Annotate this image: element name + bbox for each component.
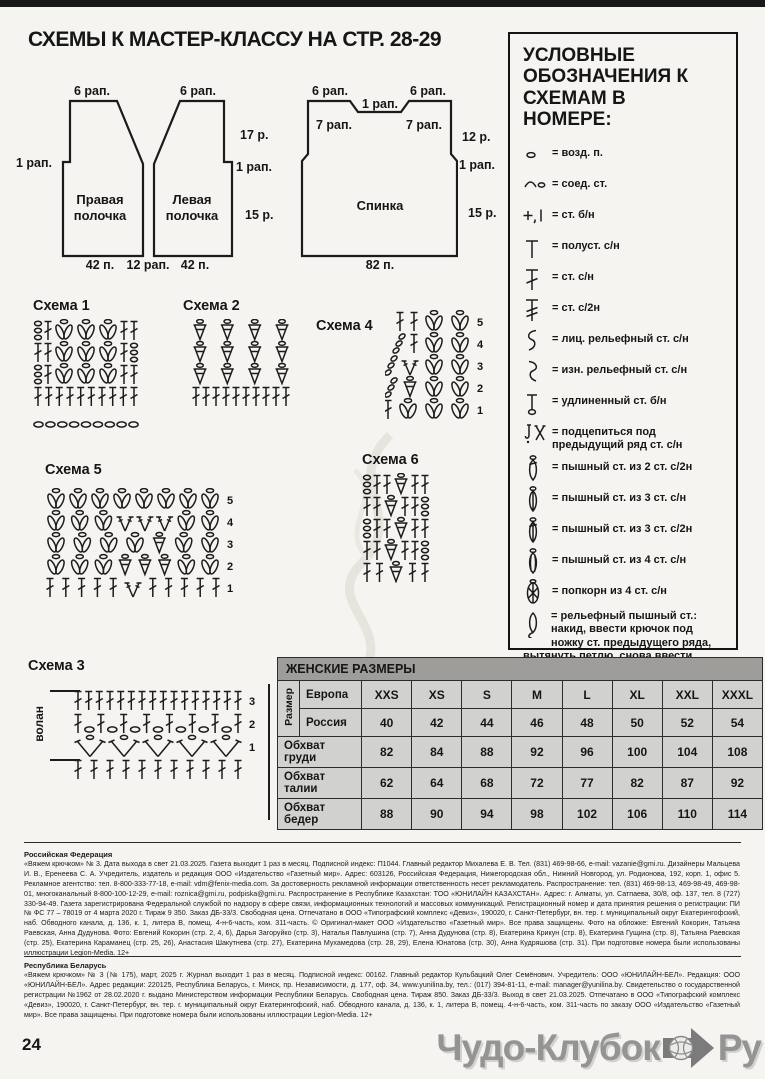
table-cell: 110	[662, 799, 712, 830]
table-cell: 104	[662, 737, 712, 768]
scheme-6-chart	[362, 473, 430, 588]
popcorn-icon	[523, 579, 547, 607]
legend-title: УСЛОВНЫЕ ОБОЗНАЧЕНИЯ К СХЕМАМ В НОМЕРЕ:	[523, 45, 718, 131]
scheme-4-title: Схема 4	[316, 318, 373, 334]
legend-item: = ст. б/н	[523, 203, 723, 231]
stitch-chart-svg: 321	[73, 689, 261, 781]
watermark-text-2: Ру	[718, 1027, 761, 1069]
scheme-5-chart: 54321	[45, 488, 239, 603]
legend-item: = подцепиться под предыдущий ряд ст. с/н	[523, 420, 723, 452]
stitch-chart-svg	[191, 319, 291, 407]
table-header-cell: 46	[512, 709, 562, 737]
legend-item-label: = пышный ст. из 3 ст. с/2н	[552, 517, 692, 536]
left-front-outline	[152, 98, 238, 258]
table-header-cell: XS	[412, 681, 462, 709]
stitch-chart-svg	[33, 319, 139, 429]
legend-item: = полуст. с/н	[523, 234, 723, 262]
table-cell: 82	[362, 737, 412, 768]
lf-step-label: 1 рап.	[236, 160, 272, 174]
table-header-cell: 48	[562, 709, 612, 737]
scheme-6-title: Схема 6	[362, 452, 430, 468]
puff2-icon	[523, 455, 547, 483]
reliefpuff-icon	[523, 610, 547, 638]
table-header-cell: 52	[662, 709, 712, 737]
magazine-page: СХЕМЫ К МАСТЕР-КЛАССУ НА СТР. 28-29 6 ра…	[0, 0, 765, 1079]
back-name: Спинка	[330, 198, 430, 214]
right-front-outline	[55, 98, 145, 258]
under-icon	[523, 420, 547, 448]
svg-text:4: 4	[477, 339, 484, 351]
scheme-2-chart	[191, 319, 291, 412]
legend-item-label: = удлиненный ст. б/н	[552, 389, 666, 408]
site-watermark: Чудо-Клубок Ру	[437, 1025, 761, 1071]
back-top-center-label: 1 рап.	[352, 97, 408, 111]
legend-item: = ст. с/н	[523, 265, 723, 293]
legend-item-label: = ст. с/2н	[552, 296, 600, 315]
table-cell: 87	[662, 768, 712, 799]
table-header: Европа	[300, 681, 362, 709]
legend-item-label: = соед. ст.	[552, 172, 607, 191]
table-cell: 94	[462, 799, 512, 830]
legend-item: = пышный ст. из 3 ст. с/н	[523, 486, 723, 514]
table-header-cell: XXS	[362, 681, 412, 709]
svg-text:2: 2	[227, 561, 233, 573]
table-cell: 82	[612, 768, 662, 799]
back-bottom-label: 82 п.	[340, 258, 420, 272]
svg-text:1: 1	[249, 742, 255, 754]
scheme-2: Схема 2	[183, 298, 291, 412]
legend-item: = ст. с/2н	[523, 296, 723, 324]
stitch-chart-svg: 54321	[385, 310, 489, 420]
size-table: ЖЕНСКИЕ РАЗМЕРЫРазмерЕвропаXXSXSSMLXLXXL…	[277, 657, 763, 830]
table-cell: 106	[612, 799, 662, 830]
svg-text:1: 1	[227, 583, 233, 595]
legend-item: = изн. рельефный ст. с/н	[523, 358, 723, 386]
size-label: Размер	[283, 688, 295, 726]
puff3-icon	[523, 486, 547, 514]
footer-belarus-title: Республика Беларусь	[24, 961, 740, 971]
table-cell: 88	[462, 737, 512, 768]
back-lower-rows-label: 15 р.	[468, 206, 497, 220]
table-cell: 77	[562, 768, 612, 799]
scheme-5: Схема 5 54321	[45, 462, 239, 603]
svg-text:3: 3	[227, 539, 233, 551]
dc-icon	[523, 265, 547, 293]
puff3t-icon	[523, 517, 547, 545]
scheme-1-title: Схема 1	[33, 298, 139, 314]
table-cell: 92	[712, 768, 762, 799]
back-top-right-label: 6 рап.	[400, 84, 456, 98]
table-cell: 88	[362, 799, 412, 830]
table-header-cell: 50	[612, 709, 662, 737]
table-cell: 96	[562, 737, 612, 768]
table-cell: 62	[362, 768, 412, 799]
table-row-label: Обхват талии	[278, 768, 362, 799]
table-row-label: Обхват бедер	[278, 799, 362, 830]
chain-icon	[523, 141, 547, 169]
table-header-cell: XL	[612, 681, 662, 709]
stitch-chart-svg	[362, 473, 430, 583]
legend-item-label: = возд. п.	[552, 141, 603, 160]
table-row: Обхват груди8284889296100104108	[278, 737, 763, 768]
back-step-label: 1 рап.	[459, 158, 495, 172]
footer-belarus: Республика Беларусь «Вяжем крючком» № 3 …	[24, 961, 740, 1020]
esc-icon	[523, 389, 547, 417]
table-cell: 90	[412, 799, 462, 830]
page-top-edge	[0, 0, 765, 7]
table-cell: 102	[562, 799, 612, 830]
legend-items: = возд. п.= соед. ст.= ст. б/н= полуст. …	[523, 141, 723, 747]
scheme-4: Схема 4 54321	[316, 310, 489, 425]
fpdc-icon	[523, 327, 547, 355]
legend-item-label: = лиц. рельефный ст. с/н	[552, 327, 689, 346]
legend-box: УСЛОВНЫЕ ОБОЗНАЧЕНИЯ К СХЕМАМ В НОМЕРЕ: …	[508, 32, 738, 650]
legend-item: = пышный ст. из 2 ст. с/2н	[523, 455, 723, 483]
table-cell: 72	[512, 768, 562, 799]
table-row-label: Обхват груди	[278, 737, 362, 768]
scheme-1: Схема 1	[33, 298, 139, 434]
table-header-cell: S	[462, 681, 512, 709]
scheme-4-chart: 54321	[385, 310, 489, 425]
footer-divider-2	[24, 956, 741, 957]
table-header-cell: M	[512, 681, 562, 709]
legend-item-label: = ст. б/н	[552, 203, 595, 222]
scheme-3-side-label: волан	[32, 706, 46, 742]
stitch-chart-svg: 54321	[45, 488, 239, 598]
svg-text:3: 3	[477, 361, 483, 373]
footer-belarus-text: «Вяжем крючком» № 3 (№ 175), март, 2025 …	[24, 971, 740, 1018]
table-header: Россия	[300, 709, 362, 737]
page-number: 24	[22, 1035, 41, 1055]
lf-top-label: 6 рап.	[168, 84, 228, 98]
table-cell: 114	[712, 799, 762, 830]
table-header-cell: XXL	[662, 681, 712, 709]
legend-item: = удлиненный ст. б/н	[523, 389, 723, 417]
table-cell: 92	[512, 737, 562, 768]
svg-text:3: 3	[249, 696, 255, 708]
scheme-3-chart: 321	[73, 689, 261, 786]
footer-russia-title: Российская Федерация	[24, 850, 740, 860]
rf-name: Правая полочка	[60, 192, 140, 225]
legend-item: = возд. п.	[523, 141, 723, 169]
footer-russia: Российская Федерация «Вяжем крючком» № 3…	[24, 850, 740, 958]
lf-bottom-label: 42 п.	[160, 258, 230, 272]
table-cell: 64	[412, 768, 462, 799]
legend-item-label: = полуст. с/н	[552, 234, 620, 253]
table-cell: 98	[512, 799, 562, 830]
slst-icon	[523, 172, 547, 200]
table-cell: 108	[712, 737, 762, 768]
back-rows-label: 12 р.	[462, 130, 491, 144]
table-cell: 68	[462, 768, 512, 799]
svg-text:5: 5	[227, 495, 233, 507]
legend-item-label: = изн. рельефный ст. с/н	[552, 358, 687, 377]
legend-item: = пышный ст. из 3 ст. с/2н	[523, 517, 723, 545]
table-header-cell: 54	[712, 709, 762, 737]
footer-russia-text: «Вяжем крючком» № 3. Дата выхода в свет …	[24, 860, 740, 956]
hdc-icon	[523, 234, 547, 262]
yarn-ball-arrow-icon	[662, 1025, 716, 1071]
legend-item-label: = пышный ст. из 4 ст. с/н	[552, 548, 686, 567]
svg-text:4: 4	[227, 517, 234, 529]
legend-item-label: = пышный ст. из 3 ст. с/н	[552, 486, 686, 505]
table-row-header: Размер	[278, 681, 300, 737]
legend-item-label: = ст. с/н	[552, 265, 594, 284]
table-row: Обхват талии6264687277828792	[278, 768, 763, 799]
table-cell: 100	[612, 737, 662, 768]
table-cell: 84	[412, 737, 462, 768]
scheme-3-title: Схема 3	[28, 658, 268, 674]
page-title: СХЕМЫ К МАСТЕР-КЛАССУ НА СТР. 28-29	[28, 28, 441, 52]
svg-text:2: 2	[477, 383, 483, 395]
scheme-3: Схема 3 волан 321	[28, 658, 268, 783]
legend-item: = лиц. рельефный ст. с/н	[523, 327, 723, 355]
column-divider	[268, 684, 270, 820]
legend-item-label: = подцепиться под предыдущий ряд ст. с/н	[552, 420, 723, 452]
legend-item: = соед. ст.	[523, 172, 723, 200]
back-shoulder-right-label: 7 рап.	[402, 118, 446, 132]
lf-rows-label: 17 р.	[240, 128, 269, 142]
back-top-left-label: 6 рап.	[302, 84, 358, 98]
svg-text:5: 5	[477, 317, 483, 329]
puff4-icon	[523, 548, 547, 576]
legend-item-label: = пышный ст. из 2 ст. с/2н	[552, 455, 692, 474]
lf-name: Левая полочка	[152, 192, 232, 225]
scheme-5-title: Схема 5	[45, 462, 239, 478]
scheme-1-chart	[33, 319, 139, 434]
table-header-cell: 44	[462, 709, 512, 737]
size-table-wrap: ЖЕНСКИЕ РАЗМЕРЫРазмерЕвропаXXSXSSMLXLXXL…	[277, 657, 763, 830]
legend-item: = попкорн из 4 ст. с/н	[523, 579, 723, 607]
sc-icon	[523, 203, 547, 231]
legend-item-label: = попкорн из 4 ст. с/н	[552, 579, 667, 598]
scheme-6: Схема 6	[362, 452, 430, 588]
table-header-cell: XXXL	[712, 681, 762, 709]
lf-lower-rows-label: 15 р.	[245, 208, 274, 222]
table-row: Обхват бедер88909498102106110114	[278, 799, 763, 830]
legend-item: = пышный ст. из 4 ст. с/н	[523, 548, 723, 576]
table-header-cell: 42	[412, 709, 462, 737]
svg-text:2: 2	[249, 719, 255, 731]
back-shoulder-left-label: 7 рап.	[312, 118, 356, 132]
rf-left-label: 1 рап.	[16, 156, 52, 170]
scheme-2-title: Схема 2	[183, 298, 291, 314]
table-header-cell: 40	[362, 709, 412, 737]
dc2-icon	[523, 296, 547, 324]
svg-text:1: 1	[477, 405, 483, 417]
watermark-text-1: Чудо-Клубок	[437, 1027, 660, 1069]
table-header-cell: L	[562, 681, 612, 709]
footer-divider	[24, 842, 741, 843]
table-title: ЖЕНСКИЕ РАЗМЕРЫ	[278, 658, 763, 681]
bpdc-icon	[523, 358, 547, 386]
rf-top-label: 6 рап.	[62, 84, 122, 98]
